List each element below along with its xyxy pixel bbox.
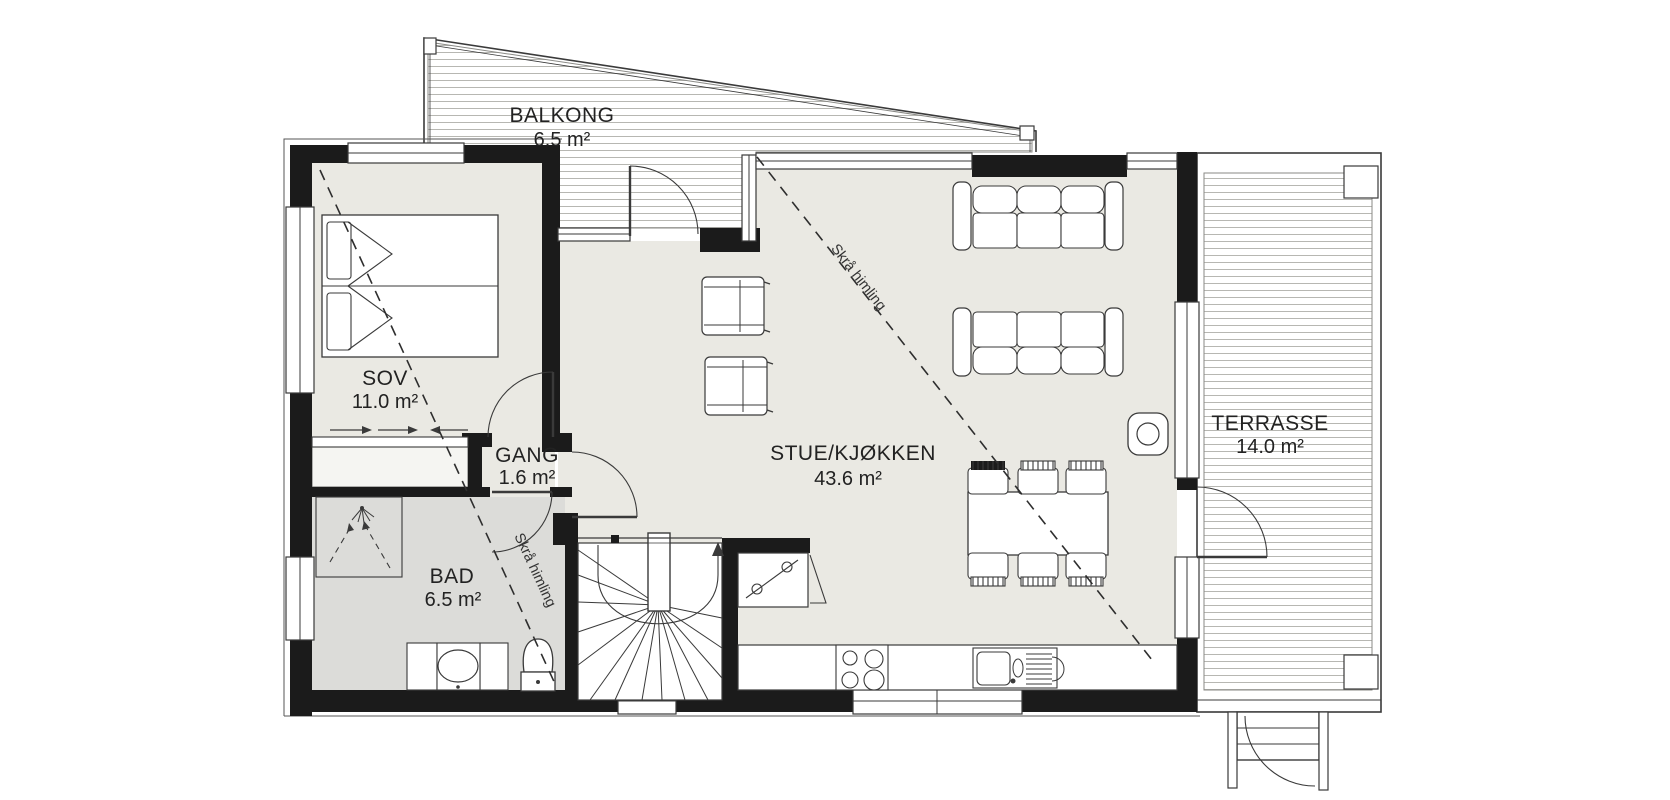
window-bottom-kitchen — [853, 688, 1022, 714]
railing-corner — [1344, 166, 1378, 198]
label-gang-area: 1.6 m² — [499, 467, 556, 489]
label-stue: STUE/KJØKKEN — [770, 442, 936, 465]
label-terrasse: TERRASSE — [1211, 412, 1328, 435]
label-sov-area: 11.0 m² — [352, 391, 419, 413]
label-terrasse-area: 14.0 m² — [1236, 436, 1304, 458]
window-living-east-lower — [1175, 557, 1199, 638]
dining-chairs — [968, 461, 1106, 494]
railing-post — [1020, 126, 1034, 140]
cooktop — [836, 645, 888, 690]
kitchen-counter — [738, 645, 1177, 690]
label-balkong-area: 6.5 m² — [534, 129, 591, 151]
window-living-east-upper — [1175, 302, 1199, 478]
label-stue-area: 43.6 m² — [814, 468, 882, 490]
kitchen-sink — [973, 648, 1064, 688]
dining-chairs — [968, 553, 1106, 586]
window-living-top-left — [756, 153, 972, 169]
railing-post — [424, 38, 436, 54]
railing-corner — [1344, 655, 1378, 689]
terrace-deck — [1197, 153, 1381, 790]
label-sov: SOV — [362, 367, 408, 390]
vanity-sink — [407, 643, 508, 690]
window-balcony-wall — [558, 228, 630, 241]
toilet — [521, 639, 555, 691]
winder-staircase — [578, 533, 724, 700]
terrace-steps — [1228, 712, 1328, 790]
label-bad-area: 6.5 m² — [425, 589, 482, 611]
window-column — [742, 155, 756, 241]
label-bad: BAD — [430, 565, 475, 588]
dining-table — [968, 492, 1108, 555]
fireplace — [1128, 413, 1168, 455]
rail-post — [611, 535, 619, 543]
wardrobe-sliding — [312, 447, 468, 487]
floorplan-canvas: BALKONG 6.5 m² SOV 11.0 m² GANG 1.6 m² B… — [0, 0, 1670, 800]
label-gang: GANG — [495, 444, 559, 467]
window-bedroom-left — [286, 207, 314, 393]
sofa — [953, 182, 1123, 250]
window-bath-left — [286, 557, 314, 640]
armchair — [702, 277, 770, 335]
window-bedroom-top — [348, 143, 464, 163]
window-living-top-right — [1127, 153, 1177, 169]
label-balkong: BALKONG — [509, 104, 614, 127]
double-bed — [322, 215, 498, 357]
sofa — [953, 308, 1123, 376]
armchair — [705, 357, 773, 415]
